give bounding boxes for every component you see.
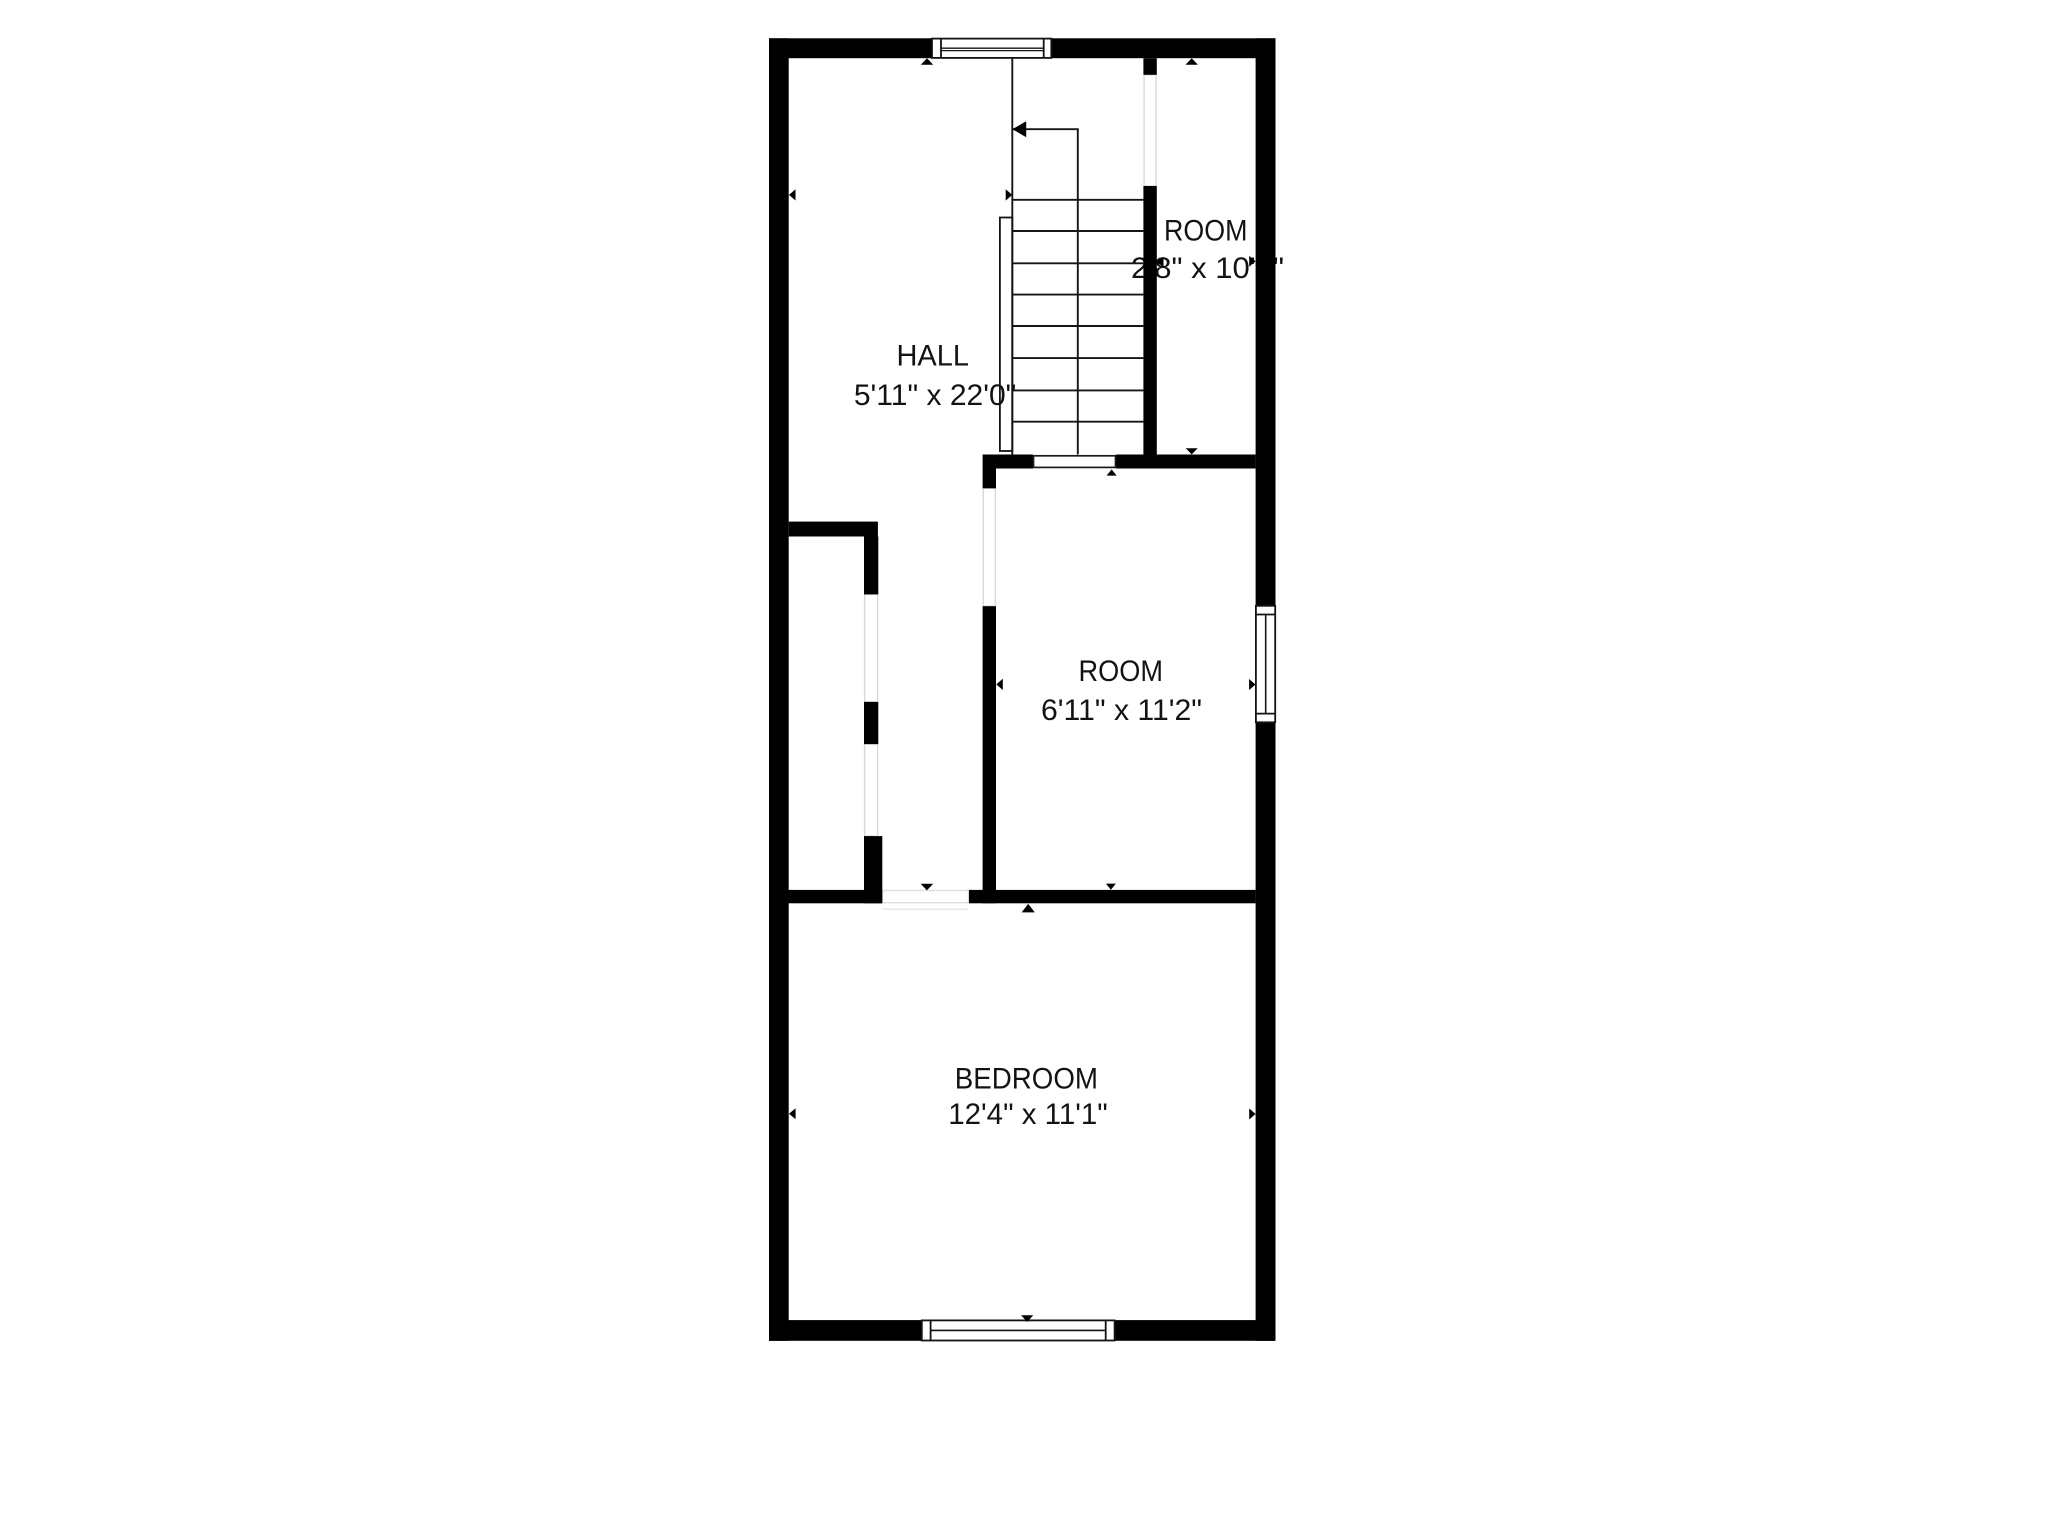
svg-text:12'4" x 11'1": 12'4" x 11'1" — [948, 1098, 1108, 1131]
svg-text:ROOM: ROOM — [1164, 215, 1248, 248]
svg-text:6'11" x 11'2": 6'11" x 11'2" — [1041, 694, 1202, 727]
svg-text:HALL: HALL — [896, 340, 969, 373]
svg-text:5'11" x 22'0": 5'11" x 22'0" — [854, 379, 1017, 412]
svg-text:BEDROOM: BEDROOM — [955, 1062, 1098, 1095]
svg-text:ROOM: ROOM — [1079, 655, 1164, 688]
